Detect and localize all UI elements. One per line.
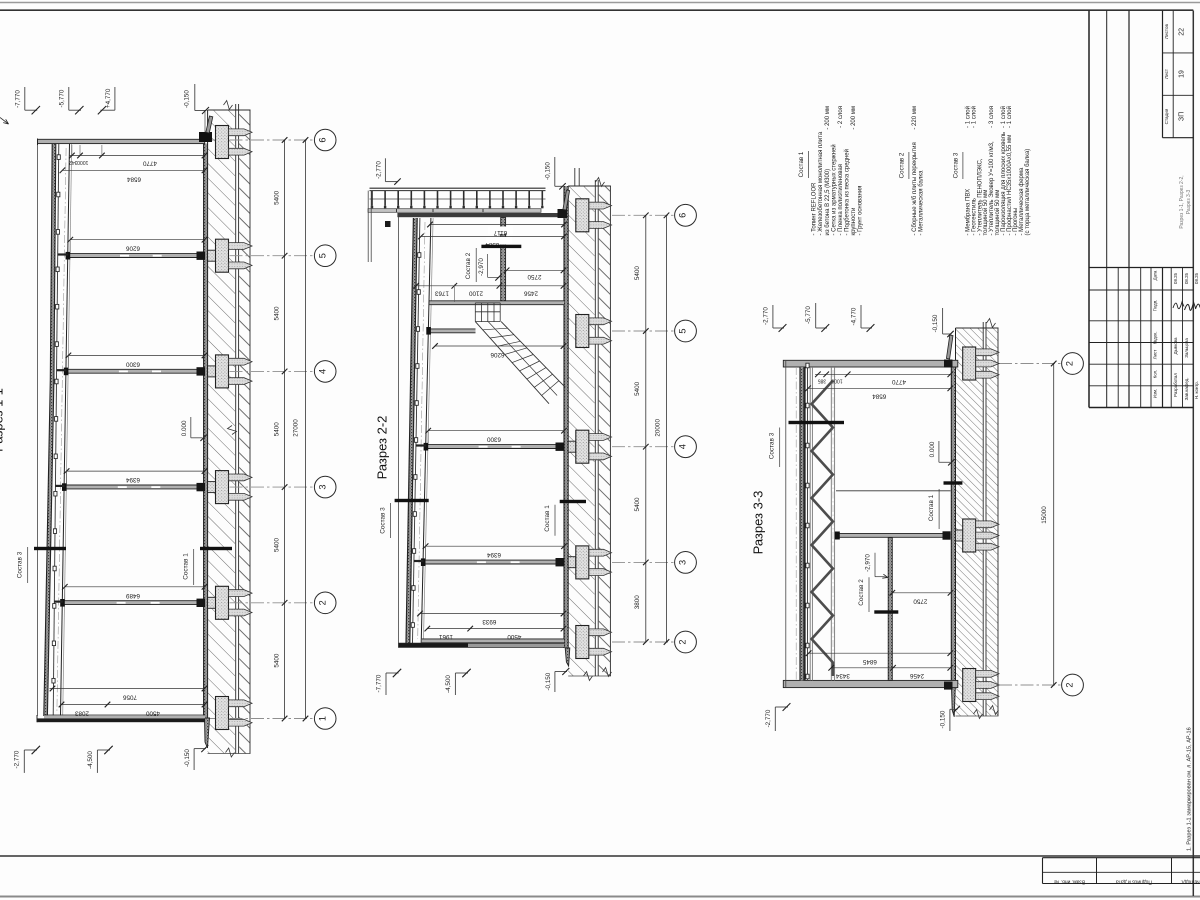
svg-text:Разрез 1-1, Разрез 2-2,: Разрез 1-1, Разрез 2-2,	[1179, 175, 1185, 228]
svg-text:Дьякова: Дьякова	[1173, 337, 1178, 354]
svg-text:(с торца металлическая балка): (с торца металлическая балка)	[1025, 149, 1031, 236]
svg-text:6394: 6394	[126, 476, 141, 483]
svg-text:-0,150: -0,150	[184, 90, 191, 108]
svg-text:1763: 1763	[435, 289, 450, 296]
svg-text:-7,770: -7,770	[376, 674, 383, 692]
svg-text:1961: 1961	[439, 633, 454, 640]
svg-text:Состав 3: Состав 3	[17, 551, 24, 578]
svg-text:6: 6	[678, 213, 688, 218]
svg-text:Дата: Дата	[1153, 270, 1158, 280]
svg-text:- 1 слой: - 1 слой	[971, 106, 978, 128]
svg-text:342: 342	[69, 159, 78, 165]
svg-text:-0,150: -0,150	[184, 749, 191, 767]
svg-text:- Грунт основания: - Грунт основания	[858, 186, 864, 236]
svg-text:08.25: 08.25	[1194, 272, 1199, 284]
svg-text:- 200 мм: - 200 мм	[825, 106, 831, 130]
svg-text:-4,770: -4,770	[851, 307, 858, 325]
svg-text:Состав 3: Состав 3	[953, 152, 960, 178]
svg-text:3: 3	[678, 560, 688, 565]
svg-text:2: 2	[317, 600, 327, 605]
svg-text:Разработал: Разработал	[1173, 373, 1178, 397]
svg-text:-2,770: -2,770	[762, 307, 769, 325]
svg-text:3: 3	[317, 485, 327, 490]
svg-text:толщиной 50 мм: толщиной 50 мм	[994, 190, 1001, 236]
svg-text:Н. контр.: Н. контр.	[1194, 381, 1199, 399]
svg-text:5400: 5400	[273, 422, 280, 437]
svg-text:Лист: Лист	[1153, 350, 1158, 360]
svg-text:5400: 5400	[634, 381, 641, 396]
svg-text:5400: 5400	[273, 306, 280, 321]
svg-text:Состав 1: Состав 1	[183, 553, 190, 580]
svg-text:Стадия: Стадия	[1164, 108, 1169, 124]
svg-text:5400: 5400	[273, 653, 280, 668]
svg-text:4770: 4770	[143, 159, 158, 166]
svg-text:Разрез 2-2: Разрез 2-2	[374, 416, 389, 480]
svg-text:- Пленка полиэтиленовая: - Пленка полиэтиленовая	[838, 164, 844, 235]
svg-text:2083: 2083	[75, 710, 90, 717]
svg-text:-5,770: -5,770	[805, 306, 812, 324]
svg-text:6300: 6300	[126, 360, 141, 367]
svg-text:4: 4	[317, 369, 327, 374]
svg-text:6584: 6584	[872, 393, 887, 400]
svg-text:08.25: 08.25	[1173, 272, 1178, 284]
svg-text:2750: 2750	[913, 597, 928, 604]
svg-text:Состав 2: Состав 2	[465, 252, 472, 279]
svg-text:- 1 слой: - 1 слой	[1006, 106, 1013, 128]
svg-text:385: 385	[818, 378, 827, 384]
svg-text:5: 5	[317, 253, 327, 258]
svg-text:2456: 2456	[910, 672, 925, 679]
svg-text:1000: 1000	[77, 159, 88, 165]
svg-text:27000: 27000	[292, 419, 299, 437]
svg-text:ЗП: ЗП	[1179, 112, 1186, 121]
svg-text:1000: 1000	[831, 378, 842, 384]
svg-text:- 3 слоя: - 3 слоя	[989, 106, 995, 128]
svg-text:5400: 5400	[273, 538, 280, 553]
svg-text:-4,500: -4,500	[87, 751, 94, 769]
svg-text:6933: 6933	[482, 618, 497, 625]
svg-text:толщиной 50 мм: толщиной 50 мм	[982, 190, 989, 236]
svg-text:Листов: Листов	[1164, 23, 1169, 38]
svg-text:Кол.: Кол.	[1153, 370, 1158, 379]
svg-text:0.000: 0.000	[929, 441, 936, 457]
svg-text:из бетона В 22,5 (М300): из бетона В 22,5 (М300)	[825, 169, 831, 236]
svg-text:08.25: 08.25	[1184, 272, 1189, 284]
svg-text:6845: 6845	[862, 658, 877, 665]
svg-text:6394: 6394	[487, 551, 502, 558]
svg-text:Разрез 3-3: Разрез 3-3	[751, 491, 766, 555]
svg-text:2: 2	[678, 639, 688, 644]
svg-text:- Металлическая балка: - Металлическая балка	[919, 170, 925, 236]
svg-text:2100: 2100	[469, 289, 484, 296]
svg-text:- Сборные ж/б плиты перекрытия: - Сборные ж/б плиты перекрытия	[912, 142, 918, 235]
svg-text:4500: 4500	[146, 710, 161, 717]
svg-text:22: 22	[1179, 28, 1186, 36]
svg-text:-2,970: -2,970	[865, 554, 872, 572]
svg-text:-2,770: -2,770	[375, 161, 382, 179]
svg-text:Состав 3: Состав 3	[769, 432, 776, 459]
svg-text:4770: 4770	[892, 378, 907, 385]
svg-text:19: 19	[1179, 70, 1186, 78]
svg-text:Зальцова: Зальцова	[1184, 338, 1189, 358]
svg-text:5: 5	[678, 328, 688, 333]
svg-text:6489: 6489	[126, 592, 141, 599]
svg-text:Взам. инв. №: Взам. инв. №	[1054, 879, 1085, 885]
svg-text:- Подбетонка из песка средней: - Подбетонка из песка средней	[844, 149, 851, 235]
svg-text:Состав 3: Состав 3	[379, 507, 386, 534]
svg-text:-2,770: -2,770	[765, 709, 772, 727]
svg-text:Состав 2: Состав 2	[858, 579, 865, 606]
svg-text:- 1 слой: - 1 слой	[965, 106, 972, 128]
svg-text:3434: 3434	[835, 672, 850, 679]
svg-text:-2,970: -2,970	[478, 258, 485, 276]
svg-text:-0,150: -0,150	[545, 672, 552, 690]
svg-text:1: 1	[317, 716, 327, 721]
svg-text:6584: 6584	[127, 176, 142, 183]
svg-text:Разрез 1-1: Разрез 1-1	[0, 388, 6, 452]
svg-text:-0,150: -0,150	[932, 314, 939, 332]
svg-text:Инв. № подл.: Инв. № подл.	[1180, 879, 1200, 885]
svg-text:Состав 1: Состав 1	[928, 494, 935, 521]
svg-text:5400: 5400	[634, 497, 641, 512]
svg-text:Подп.: Подп.	[1153, 300, 1158, 312]
svg-text:4: 4	[678, 444, 688, 449]
svg-text:Состав 1: Состав 1	[798, 151, 805, 177]
svg-text:15000: 15000	[1041, 506, 1048, 524]
svg-text:5400: 5400	[634, 266, 641, 281]
svg-text:-5,770: -5,770	[58, 89, 65, 107]
svg-text:- 200 мм: - 200 мм	[851, 106, 857, 130]
svg-text:Состав 1: Состав 1	[544, 505, 551, 532]
svg-text:6: 6	[317, 137, 327, 142]
svg-text:Состав 2: Состав 2	[899, 152, 906, 178]
svg-text:2750: 2750	[527, 273, 542, 280]
svg-text:6206: 6206	[126, 245, 141, 252]
svg-text:№док.: №док.	[1153, 332, 1158, 345]
svg-text:- 2 слоя: - 2 слоя	[838, 106, 844, 128]
svg-text:20000: 20000	[654, 419, 661, 437]
svg-text:-7,770: -7,770	[14, 90, 21, 108]
svg-text:Лист: Лист	[1164, 68, 1169, 79]
svg-text:- Железобетонная монолитная пл: - Железобетонная монолитная плита	[818, 131, 824, 235]
svg-text:5400: 5400	[273, 190, 280, 205]
svg-text:- Топинг REFLOOR: - Топинг REFLOOR	[811, 182, 817, 236]
svg-text:- Сетка из арматурных стержней: - Сетка из арматурных стержней	[831, 144, 838, 235]
svg-text:6117: 6117	[493, 229, 507, 236]
svg-text:Подпись и дата: Подпись и дата	[1116, 879, 1152, 885]
svg-text:Зав.кафед.: Зав.кафед.	[1184, 378, 1189, 401]
svg-text:- 1 слой: - 1 слой	[1000, 106, 1007, 128]
svg-text:2456: 2456	[524, 289, 539, 296]
svg-text:-0,150: -0,150	[545, 162, 552, 180]
svg-text:- 220 мм: - 220 мм	[912, 106, 918, 130]
svg-text:0.000: 0.000	[181, 420, 188, 436]
svg-text:крупности: крупности	[851, 208, 857, 236]
svg-text:Разрез 3-3: Разрез 3-3	[1186, 190, 1192, 215]
svg-text:+4,770: +4,770	[105, 88, 112, 108]
svg-text:-2,770: -2,770	[14, 750, 21, 768]
svg-text:-4,500: -4,500	[445, 675, 452, 693]
svg-text:3800: 3800	[634, 595, 641, 610]
svg-text:7056: 7056	[123, 694, 138, 701]
svg-text:1. Разрез 1-1 замаркирован см.: 1. Разрез 1-1 замаркирован см. л. АР-15,…	[1186, 727, 1192, 851]
svg-text:-0,150: -0,150	[940, 710, 947, 728]
svg-text:2: 2	[1065, 682, 1075, 687]
svg-text:6300: 6300	[487, 436, 502, 443]
svg-text:4500: 4500	[507, 633, 522, 640]
svg-text:2: 2	[1065, 361, 1075, 366]
svg-text:Изм.: Изм.	[1153, 389, 1158, 398]
